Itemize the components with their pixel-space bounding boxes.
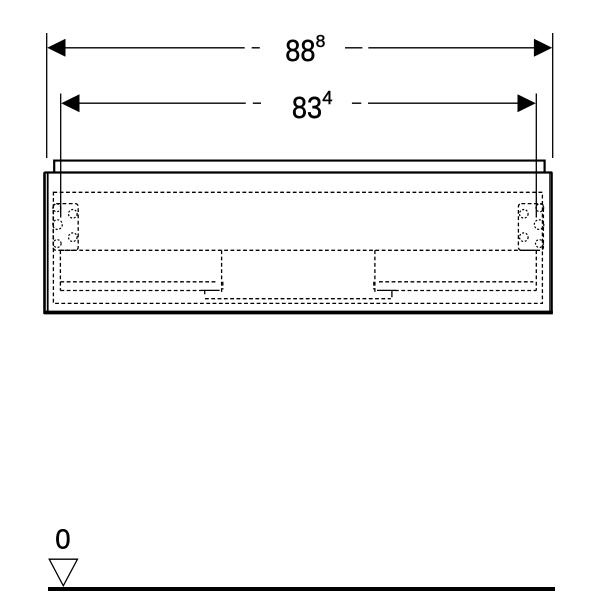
- svg-text:4: 4: [322, 87, 332, 108]
- svg-text:8: 8: [316, 31, 326, 51]
- svg-text:0: 0: [55, 523, 70, 554]
- svg-text:83: 83: [292, 92, 322, 126]
- svg-text:88: 88: [285, 34, 315, 68]
